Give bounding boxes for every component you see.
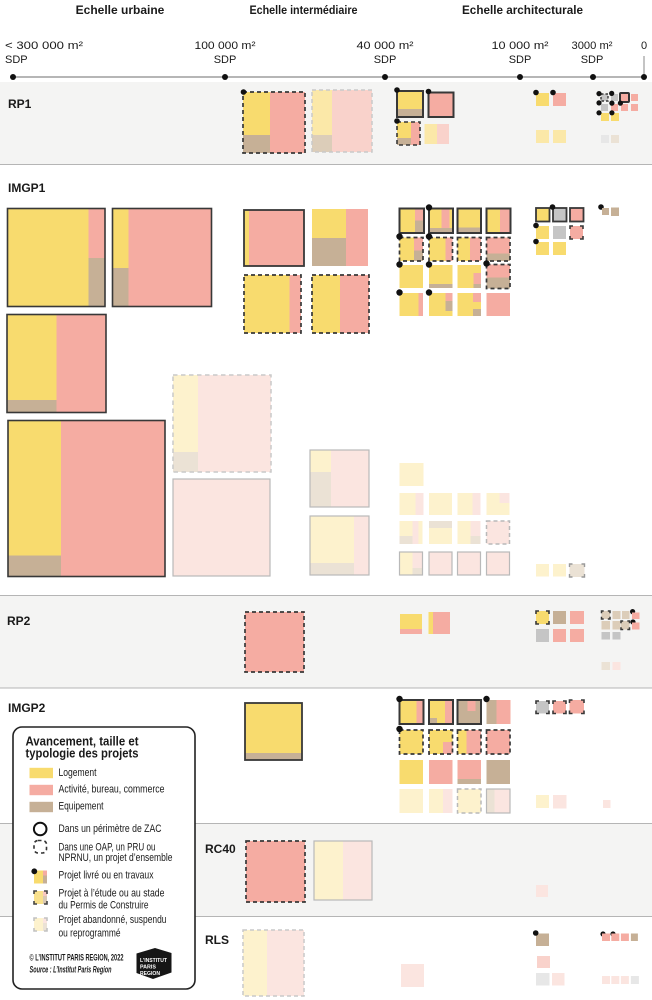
svg-text:RLS: RLS	[205, 933, 229, 947]
svg-text:RP2: RP2	[7, 614, 31, 628]
svg-text:Echelle architecturale: Echelle architecturale	[462, 3, 583, 17]
svg-text:du Permis de Construire: du Permis de Construire	[59, 900, 149, 912]
svg-text:REGION: REGION	[140, 971, 160, 977]
svg-text:SDP: SDP	[581, 54, 604, 66]
svg-text:© L’INSTITUT PARIS REGION, 202: © L’INSTITUT PARIS REGION, 2022	[30, 953, 124, 963]
svg-text:Echelle urbaine: Echelle urbaine	[76, 3, 165, 17]
svg-text:Dans un périmètre de ZAC: Dans un périmètre de ZAC	[59, 823, 162, 835]
svg-text:100 000 m²: 100 000 m²	[195, 40, 256, 52]
svg-text:NPRNU, un projet d’ensemble: NPRNU, un projet d’ensemble	[59, 852, 173, 864]
svg-text:RP1: RP1	[8, 97, 32, 111]
svg-text:40 000 m²: 40 000 m²	[357, 40, 414, 52]
svg-text:Projet abandonné, suspendu: Projet abandonné, suspendu	[59, 914, 167, 926]
svg-text:Logement: Logement	[59, 767, 97, 779]
svg-text:typologie des projets: typologie des projets	[26, 747, 139, 761]
svg-text:L’INSTITUT: L’INSTITUT	[140, 958, 168, 964]
svg-text:SDP: SDP	[214, 54, 237, 66]
svg-text:SDP: SDP	[374, 54, 397, 66]
svg-text:IMGP1: IMGP1	[8, 181, 46, 195]
svg-text:10 000 m²: 10 000 m²	[492, 40, 549, 52]
svg-text:IMGP2: IMGP2	[8, 701, 46, 715]
svg-text:SDP: SDP	[509, 54, 532, 66]
svg-text:SDP: SDP	[5, 54, 28, 66]
svg-text:0: 0	[641, 40, 647, 52]
svg-text:3000 m²: 3000 m²	[572, 40, 613, 52]
svg-text:Echelle intermédiaire: Echelle intermédiaire	[250, 3, 358, 17]
svg-text:Source : L’Institut Paris Regi: Source : L’Institut Paris Region	[30, 965, 112, 975]
svg-text:< 300 000 m²: < 300 000 m²	[5, 40, 83, 52]
svg-text:Projet à l’étude ou au stade: Projet à l’étude ou au stade	[59, 888, 165, 900]
svg-text:Projet livré ou en travaux: Projet livré ou en travaux	[59, 870, 154, 882]
svg-text:Equipement: Equipement	[59, 801, 104, 813]
svg-text:PARIS: PARIS	[140, 965, 156, 971]
svg-text:ou reprogrammé: ou reprogrammé	[59, 928, 121, 940]
svg-text:RC40: RC40	[205, 842, 236, 856]
svg-text:Activité, bureau, commerce: Activité, bureau, commerce	[59, 784, 165, 796]
